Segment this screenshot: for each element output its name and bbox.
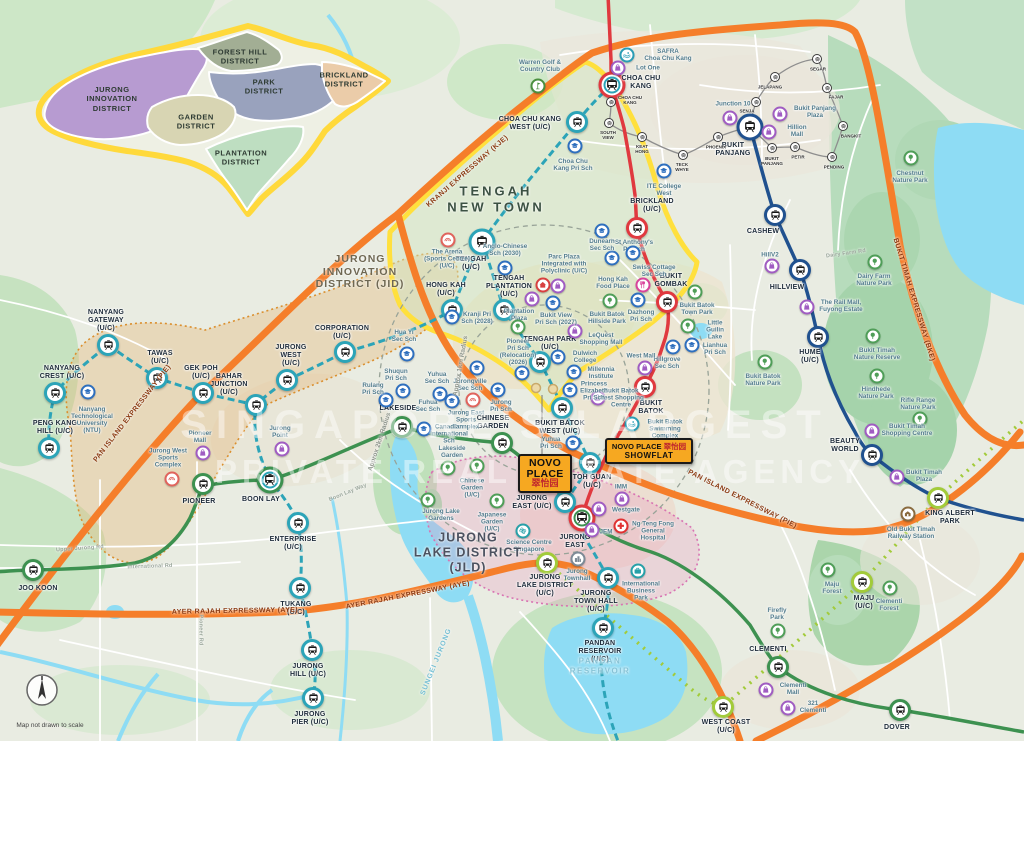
poi-mall-icon — [762, 125, 777, 140]
station-label: TAWAS (U/C) — [147, 350, 172, 366]
school-icon — [660, 167, 669, 176]
lrt-station-pending — [827, 152, 837, 162]
novo-place-name: NOVO PLACE — [521, 458, 569, 479]
station-label: JURONG HILL (U/C) — [290, 663, 326, 679]
road-label: International Rd — [127, 563, 172, 571]
poi-label: Lianhua Pri Sch — [703, 342, 727, 356]
lrt-station-south-view — [604, 118, 614, 128]
mall-icon — [868, 427, 877, 436]
poi-label: Hillgrove Sec Sch — [654, 356, 681, 370]
road-label: Dairy Farm Rd — [826, 248, 867, 260]
poi-label: Bukit Timah Shopping Centre — [882, 423, 933, 437]
poi-school-icon — [470, 361, 485, 376]
lrt-station-bangkit — [838, 121, 848, 131]
poi-school-icon — [551, 350, 566, 365]
mall-icon — [726, 114, 735, 123]
school-icon — [669, 343, 678, 352]
poi-school-icon — [515, 366, 530, 381]
train-icon — [770, 210, 781, 221]
station-bukit-gombak — [656, 291, 678, 313]
station-label: KING ALBERT PARK — [925, 510, 975, 526]
mall-icon — [571, 327, 580, 336]
train-icon — [815, 57, 820, 62]
poi-mall-icon — [551, 279, 566, 294]
station-label: GEK POH (U/C) — [184, 365, 218, 381]
poi-park-icon — [603, 294, 618, 309]
station-label: JURONG WEST (U/C) — [275, 344, 306, 368]
station-maju-u-c — [851, 571, 873, 593]
poi-sports-icon — [441, 233, 456, 248]
station-cashew — [764, 204, 786, 226]
station-label: JOO KOON — [18, 585, 57, 593]
poi-label: Yuhua Sec Sch — [425, 371, 450, 385]
station-joo-koon — [22, 559, 44, 581]
poi-label: Bukit Timah Plaza — [906, 469, 942, 483]
poi-label: Clementi Mall — [780, 682, 807, 696]
compass-icon — [24, 672, 60, 708]
train-icon — [867, 450, 878, 461]
poi-mall-icon — [865, 424, 880, 439]
inset-district-label-plantation-district: PLANTATION DISTRICT — [215, 149, 267, 168]
poi-label: Firefly Park — [768, 607, 787, 621]
train-icon — [576, 512, 589, 525]
park-icon — [514, 323, 523, 332]
station-jurong-town-hall-u-c — [597, 567, 619, 589]
poi-label: West Mall — [627, 352, 656, 359]
poi-label: Dunearn Sec Sch — [589, 238, 615, 252]
mall-icon — [618, 495, 627, 504]
school-icon — [436, 390, 445, 399]
poi-label: JEM — [600, 528, 613, 535]
poi-biz-icon — [631, 564, 646, 579]
station-jurong-hill-u-c — [301, 639, 323, 661]
poi-school-icon — [81, 385, 96, 400]
park-icon — [606, 297, 615, 306]
school-icon — [473, 364, 482, 373]
legend: LEGEND: NORTH SOUTH LINE EAST WEST LINE … — [0, 741, 1024, 841]
poi-school-icon — [626, 246, 641, 261]
mall-icon — [762, 686, 771, 695]
lrt-station-label: PHOENIX — [706, 146, 726, 151]
school-icon — [448, 313, 457, 322]
poi-school-icon — [445, 310, 460, 325]
station-tukang-u-c — [289, 577, 311, 599]
poi-label: Hua Yi Sec Sch — [392, 329, 417, 343]
poi-hospital-icon — [614, 519, 629, 534]
town-icon — [574, 555, 583, 564]
poi-park-icon — [771, 624, 786, 639]
station-label: DOVER — [884, 724, 910, 732]
station-label: PIONEER — [183, 498, 216, 506]
poi-railold-icon — [901, 507, 916, 522]
park-icon — [493, 497, 502, 506]
train-icon — [754, 100, 759, 105]
school-icon — [598, 227, 607, 236]
poi-label: Bukit Timah Nature Reserve — [854, 347, 900, 361]
park-icon — [873, 372, 882, 381]
poi-food-icon — [636, 278, 651, 293]
school-icon — [399, 387, 408, 396]
lrt-station-keat-hong — [637, 132, 647, 142]
train-icon — [681, 153, 686, 158]
mall-icon — [554, 282, 563, 291]
station-peng-kang-hill-u-c — [38, 437, 60, 459]
showflat-label: SHOWFLAT — [608, 451, 690, 460]
station-label: BRICKLAND (U/C) — [630, 198, 673, 214]
school-icon — [403, 350, 412, 359]
novo-showflat-marker: NOVO PLACE 翠怡园 SHOWFLAT — [605, 438, 693, 464]
novo-place-location-map: CHOA CHU KANGCHOA CHU KANG WEST (U/C)BRI… — [0, 0, 1024, 841]
station-label: MAJU (U/C) — [854, 595, 875, 611]
road-label: BUKIT TIMAH EXPRESSWAY (BKE) — [890, 237, 936, 362]
lrt-station-choa-chu-kang — [606, 97, 616, 107]
poi-label: Bukit Panjang Plaza — [794, 105, 836, 119]
poi-school-icon — [400, 347, 415, 362]
train-icon — [825, 86, 830, 91]
lrt-station-label: TECK WHYE — [675, 163, 689, 173]
map-canvas: CHOA CHU KANGCHOA CHU KANG WEST (U/C)BRI… — [0, 0, 1024, 741]
poi-school-icon — [491, 383, 506, 398]
poi-mall-icon — [615, 492, 630, 507]
lrt-station-fajar — [822, 83, 832, 93]
poi-label: Hong Kah Food Place — [596, 276, 630, 290]
train-icon — [50, 388, 61, 399]
station-brickland-u-c — [626, 217, 648, 239]
train-icon — [282, 375, 293, 386]
poi-mall-icon — [585, 523, 600, 538]
poi-label: Chestnut Nature Park — [892, 170, 927, 184]
poi-school-icon — [563, 383, 578, 398]
school-icon — [549, 299, 558, 308]
mall-icon — [528, 295, 537, 304]
area-label: JURONG LAKE DISTRICT (JLD) — [414, 531, 522, 576]
station-pandan-reservoir-u-c — [592, 617, 614, 639]
poi-label: The Rail Mall, Fuyong Estate — [819, 299, 862, 313]
lrt-station-petir — [790, 142, 800, 152]
train-icon — [933, 493, 944, 504]
poi-park-icon — [870, 369, 885, 384]
station-corporation-u-c — [334, 341, 356, 363]
poi-mall-icon — [800, 300, 815, 315]
poi-label: Japanese Garden (U/C) — [478, 511, 507, 532]
poi-label: Dazhong Pri Sch — [628, 309, 655, 323]
area-label: SUNGEI JURONG — [420, 627, 455, 697]
station-west-coast-u-c — [712, 696, 734, 718]
train-icon — [716, 135, 721, 140]
inset-district-label-brickland-district: BRICKLAND DISTRICT — [319, 71, 368, 90]
station-label: JURONG PIER (U/C) — [292, 711, 329, 727]
station-label: JURONG EAST — [559, 534, 590, 550]
mall-icon — [199, 449, 208, 458]
train-icon — [293, 518, 304, 529]
sports-icon — [444, 236, 453, 245]
park-icon — [684, 322, 693, 331]
school-icon — [688, 341, 697, 350]
poi-label: Hindhede Nature Park — [858, 386, 893, 400]
train-icon — [607, 121, 612, 126]
poi-park-icon — [758, 355, 773, 370]
train-icon — [830, 155, 835, 160]
poi-park-icon — [868, 255, 883, 270]
poi-park-icon — [866, 329, 881, 344]
station-nanyang-gateway-u-c — [97, 334, 119, 356]
poi-school-icon — [685, 338, 700, 353]
poi-park-icon — [688, 285, 703, 300]
safra-icon — [623, 51, 632, 60]
mall-icon — [595, 505, 604, 514]
poi-school-icon — [657, 164, 672, 179]
poi-mall-icon — [525, 292, 540, 307]
train-icon — [841, 124, 846, 129]
poi-label: Bukit View Pri Sch (2027) — [535, 312, 577, 326]
train-icon — [308, 693, 319, 704]
lrt-station-label: JELAPANG — [758, 86, 782, 91]
lrt-station-phoenix — [713, 132, 723, 142]
area-label: TENGAH NEW TOWN — [447, 183, 544, 214]
poi-label: Westgate — [612, 506, 640, 513]
poi-label: Maju Forest — [822, 581, 841, 595]
school-icon — [571, 142, 580, 151]
train-icon — [560, 497, 571, 508]
mall-icon — [893, 473, 902, 482]
school-icon — [570, 368, 579, 377]
poi-label: Ng Teng Fong General Hospital — [632, 520, 674, 541]
station-dover — [889, 699, 911, 721]
poi-label: Old Bukit Timah Railway Station — [887, 526, 935, 540]
mall-icon — [784, 704, 793, 713]
station-label: HUME (U/C) — [799, 349, 820, 365]
train-icon — [603, 573, 614, 584]
poi-label: Little Guilin Lake — [706, 319, 724, 340]
lrt-station-label: BANGKIT — [841, 135, 862, 140]
train-icon — [632, 223, 643, 234]
station-label: CASHEW — [747, 228, 779, 236]
biz-icon — [634, 567, 643, 576]
park-icon — [774, 627, 783, 636]
lrt-station-label: SEGAR — [810, 68, 826, 73]
train-icon — [198, 388, 209, 399]
train-icon — [857, 577, 868, 588]
showflat-name: NOVO PLACE — [612, 442, 662, 451]
poi-label: Junction 10 — [716, 100, 751, 107]
poi-school-icon — [546, 296, 561, 311]
poi-mall-icon — [781, 701, 796, 716]
station-jurong-lake-district-u-c — [536, 552, 558, 574]
train-icon — [103, 340, 114, 351]
station-hume-u-c — [807, 326, 829, 348]
poi-label: HillV2 — [761, 251, 779, 258]
station-choa-chu-kang-west-u-c — [566, 111, 588, 133]
station-label: NANYANG CREST (U/C) — [40, 365, 85, 381]
lrt-station-label: SENJA — [739, 110, 754, 115]
station-bukit-panjang — [737, 114, 764, 141]
poi-park-icon — [421, 493, 436, 508]
poi-label: Millennia Institute — [588, 366, 615, 380]
train-icon — [198, 479, 209, 490]
lrt-station-senja — [751, 97, 761, 107]
poi-park-icon — [511, 320, 526, 335]
train-icon — [895, 705, 906, 716]
poi-label: Jurong West Sports Complex — [149, 447, 187, 468]
station-label: JURONG TOWN HALL (U/C) — [574, 590, 618, 614]
station-label: CHOA CHU KANG — [621, 75, 660, 91]
poi-town-icon — [571, 552, 586, 567]
train-icon — [44, 443, 55, 454]
train-icon — [770, 146, 775, 151]
showflat-chinese-name: 翠怡园 — [664, 442, 687, 451]
train-icon — [598, 623, 609, 634]
school-icon — [84, 388, 93, 397]
mall-icon — [614, 64, 623, 73]
park-icon — [691, 288, 700, 297]
park-icon — [871, 258, 880, 267]
poi-label: Jurong Townhall — [564, 568, 591, 582]
lrt-station-label: PETIR — [791, 156, 804, 161]
poi-mall-icon — [638, 361, 653, 376]
lrt-station-jelapang — [770, 72, 780, 82]
station-jurong-west-u-c — [276, 369, 298, 391]
poi-label: Kranji Pri Sch (2028) — [461, 311, 493, 325]
hospital-icon — [617, 522, 626, 531]
novo-place-chinese-name: 翠怡园 — [521, 479, 569, 489]
poi-mall-icon — [890, 470, 905, 485]
poi-school-icon — [595, 224, 610, 239]
station-label: ENTERPRISE (U/C) — [270, 536, 317, 552]
train-icon — [295, 583, 306, 594]
poi-park-icon — [681, 319, 696, 334]
mall-icon — [803, 303, 812, 312]
poi-label: Shuqun Pri Sch — [384, 368, 407, 382]
poi-school-icon — [396, 384, 411, 399]
station-label: HILLVIEW — [770, 284, 805, 292]
train-icon — [542, 558, 553, 569]
poi-label: ITE College West — [647, 183, 681, 197]
food-icon — [639, 281, 648, 290]
poi-label: LeQuest Shopping Mall — [579, 332, 622, 346]
poi-mall-icon — [773, 107, 788, 122]
train-icon — [773, 75, 778, 80]
station-king-albert-park — [927, 487, 949, 509]
poi-label: Parc Plaza Integrated with Polyclinic (U… — [541, 253, 587, 274]
area-label: JURONG INNOVATION DISTRICT (JID) — [316, 253, 405, 291]
poi-label: Clementi Forest — [876, 598, 903, 612]
scale-note: Map not drawn to scale — [8, 722, 92, 729]
park-icon — [761, 358, 770, 367]
school-icon — [501, 264, 510, 273]
school-icon — [518, 369, 527, 378]
mall-icon — [588, 526, 597, 535]
station-label: WEST COAST (U/C) — [702, 719, 751, 735]
poi-school-icon — [631, 293, 646, 308]
poi-label: Nanyang Technological University (NTU) — [71, 406, 113, 434]
poi-sports-icon — [165, 472, 180, 487]
poi-label: Bukit Batok Town Park — [680, 302, 715, 316]
poi-mall-icon — [611, 61, 626, 76]
lrt-station-label: FAJAR — [829, 96, 844, 101]
station-jurong-east-u-c — [554, 491, 576, 513]
school-icon — [634, 296, 643, 305]
train-icon — [795, 265, 806, 276]
station-label: JURONG EAST (U/C) — [512, 495, 551, 511]
poi-label: Jurong Lake Gardens — [422, 508, 459, 522]
poi-label: Choa Chu Kang Pri Sch — [553, 158, 592, 172]
station-jurong-pier-u-c — [302, 687, 324, 709]
poi-park-icon — [883, 581, 898, 596]
mall-icon — [768, 262, 777, 271]
park-icon — [824, 566, 833, 575]
inset-district-label-forest-hill-district: FOREST HILL DISTRICT — [213, 48, 268, 67]
poi-mall-icon — [765, 259, 780, 274]
road-label: Pioneer Rd — [197, 614, 204, 645]
station-label: HONG KAH (U/C) — [426, 282, 466, 298]
poi-label: Hillion Mall — [787, 124, 806, 138]
mall-icon — [641, 364, 650, 373]
novo-place-marker: NOVO PLACE 翠怡园 — [518, 454, 572, 493]
lrt-station-label: BUKIT PANJANG — [761, 157, 783, 167]
train-icon — [609, 100, 614, 105]
poi-label: Princess Elizabeth Pri Sch — [580, 380, 608, 401]
poi-label: International Business Park — [622, 580, 660, 601]
poi-school-icon — [498, 261, 513, 276]
poi-label: Dairy Farm Nature Park — [856, 273, 891, 287]
school-icon — [608, 254, 617, 263]
poi-label: Pioneer Pri Sch (Relocation) (2026) — [500, 338, 536, 366]
train-icon — [640, 135, 645, 140]
poi-label: Bukit Batok Nature Park — [745, 373, 780, 387]
poi-home-icon — [536, 278, 551, 293]
railold-icon — [904, 510, 913, 519]
poi-mall-icon — [723, 111, 738, 126]
train-icon — [662, 297, 673, 308]
poi-label: Bukit Batok Hillside Park — [588, 311, 626, 325]
poi-park-icon — [904, 151, 919, 166]
area-label: PANDAN RESERVOIR — [570, 656, 630, 675]
station-label: CHOA CHU KANG WEST (U/C) — [499, 116, 562, 132]
inset-district-label-park-district: PARK DISTRICT — [245, 78, 284, 97]
poi-safra-icon — [620, 48, 635, 63]
park-icon — [869, 332, 878, 341]
school-icon — [554, 353, 563, 362]
poi-school-icon — [568, 139, 583, 154]
inset-district-label-jurong-innovation-district: JURONG INNOVATION DISTRICT — [87, 85, 138, 113]
poi-mall-icon — [592, 502, 607, 517]
mall-icon — [765, 128, 774, 137]
poi-mall-icon — [759, 683, 774, 698]
home-icon — [539, 281, 548, 290]
school-icon — [629, 249, 638, 258]
lrt-station-label: CHOA CHU KANG — [618, 96, 642, 106]
school-icon — [566, 386, 575, 395]
poi-label: Rulang Pri Sch — [362, 382, 384, 396]
poi-label: The Arena (Sports Centre) (U/C) — [424, 248, 470, 269]
golf-icon — [534, 82, 543, 91]
station-hillview — [789, 259, 811, 281]
station-label: CLEMENTI — [749, 646, 786, 654]
station-enterprise-u-c — [287, 512, 309, 534]
station-pioneer — [192, 473, 214, 495]
lrt-station-segar — [812, 54, 822, 64]
area-label: SINGAPORE'S LARGEST — [180, 401, 829, 449]
poi-school-icon — [567, 365, 582, 380]
poi-label: Swiss Cottage Sec Sch — [632, 264, 675, 278]
train-icon — [773, 662, 784, 673]
lrt-station-label: PENDING — [824, 166, 845, 171]
road-label: AYER RAJAH EXPRESSWAY (AYE) — [172, 607, 298, 618]
sports-icon — [168, 475, 177, 484]
mall-icon — [776, 110, 785, 119]
park-icon — [424, 496, 433, 505]
train-icon — [28, 565, 39, 576]
